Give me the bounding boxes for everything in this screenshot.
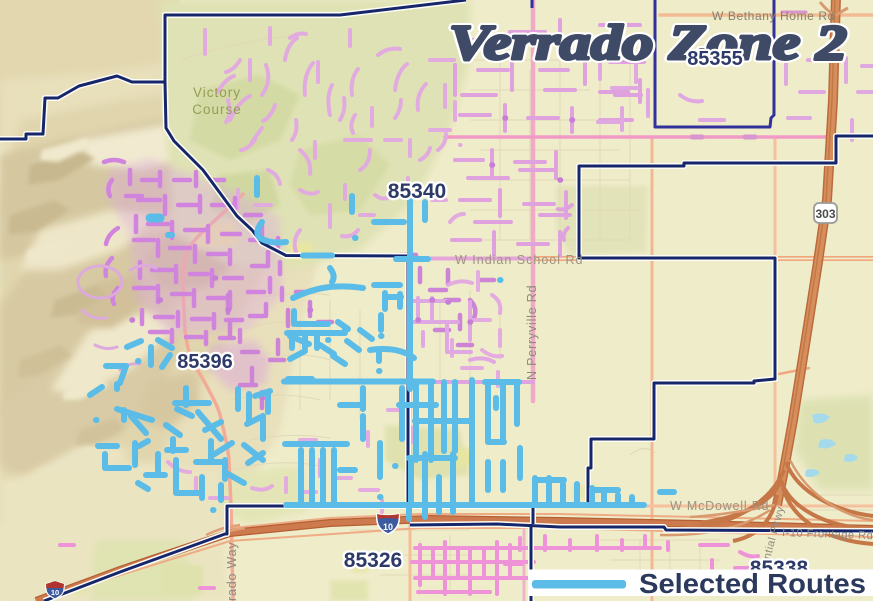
svg-text:rado Way: rado Way bbox=[225, 542, 239, 601]
svg-text:85340: 85340 bbox=[388, 180, 446, 203]
svg-text:W Indian School Rd: W Indian School Rd bbox=[455, 253, 583, 267]
svg-text:Course: Course bbox=[192, 102, 242, 117]
svg-text:N Perryville Rd: N Perryville Rd bbox=[525, 285, 539, 380]
svg-text:85355: 85355 bbox=[687, 48, 743, 70]
svg-text:Selected Routes: Selected Routes bbox=[639, 568, 866, 599]
svg-text:10: 10 bbox=[51, 588, 59, 597]
svg-text:85396: 85396 bbox=[177, 351, 233, 373]
svg-text:10: 10 bbox=[383, 522, 393, 532]
svg-text:303: 303 bbox=[815, 207, 835, 221]
svg-text:85326: 85326 bbox=[344, 549, 402, 572]
svg-text:Victory: Victory bbox=[193, 85, 241, 100]
svg-text:W McDowell Rd: W McDowell Rd bbox=[670, 499, 769, 513]
svg-text:Verrado Zone 2: Verrado Zone 2 bbox=[449, 14, 847, 70]
